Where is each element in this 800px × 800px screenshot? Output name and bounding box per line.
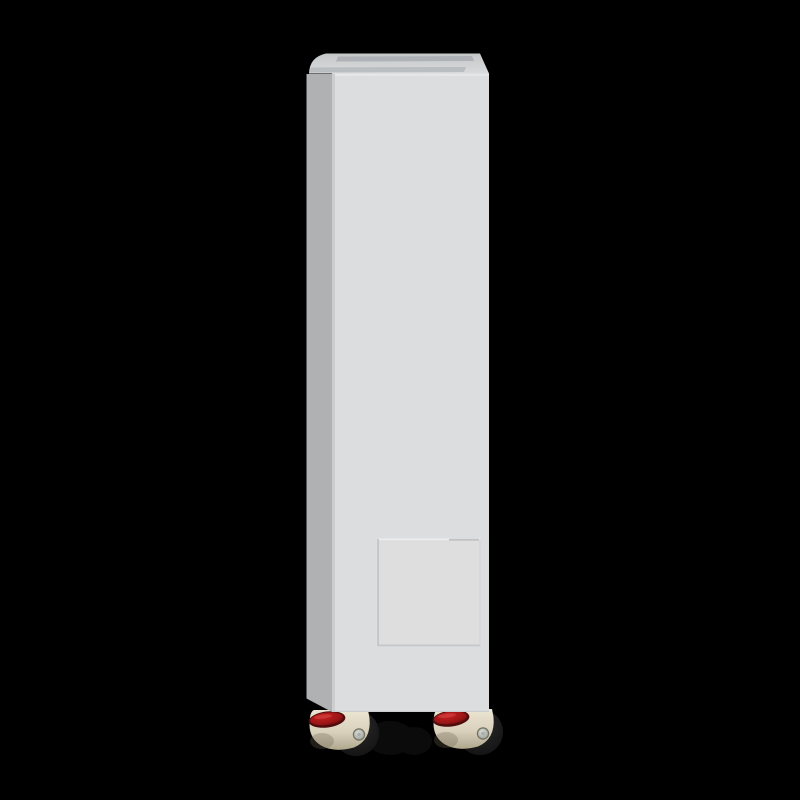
access-panel-edge-right <box>479 540 480 646</box>
top-vent-strip-front <box>309 67 466 73</box>
access-panel-edge-bottom <box>377 645 480 647</box>
access-panel <box>377 539 480 647</box>
cabinet-corner-seam <box>332 74 335 712</box>
cabinet-bottom-edge <box>332 711 489 712</box>
cabinet-side-face <box>307 74 333 712</box>
scene <box>0 0 800 800</box>
access-panel-edge-left <box>377 539 379 646</box>
product-render <box>0 0 800 800</box>
access-panel-groove <box>449 539 479 541</box>
rear-caster-hint-right <box>396 727 432 755</box>
top-vent-strip-back <box>336 56 474 62</box>
access-panel-face <box>378 540 480 645</box>
cabinet-top-edge-highlight <box>335 74 489 77</box>
